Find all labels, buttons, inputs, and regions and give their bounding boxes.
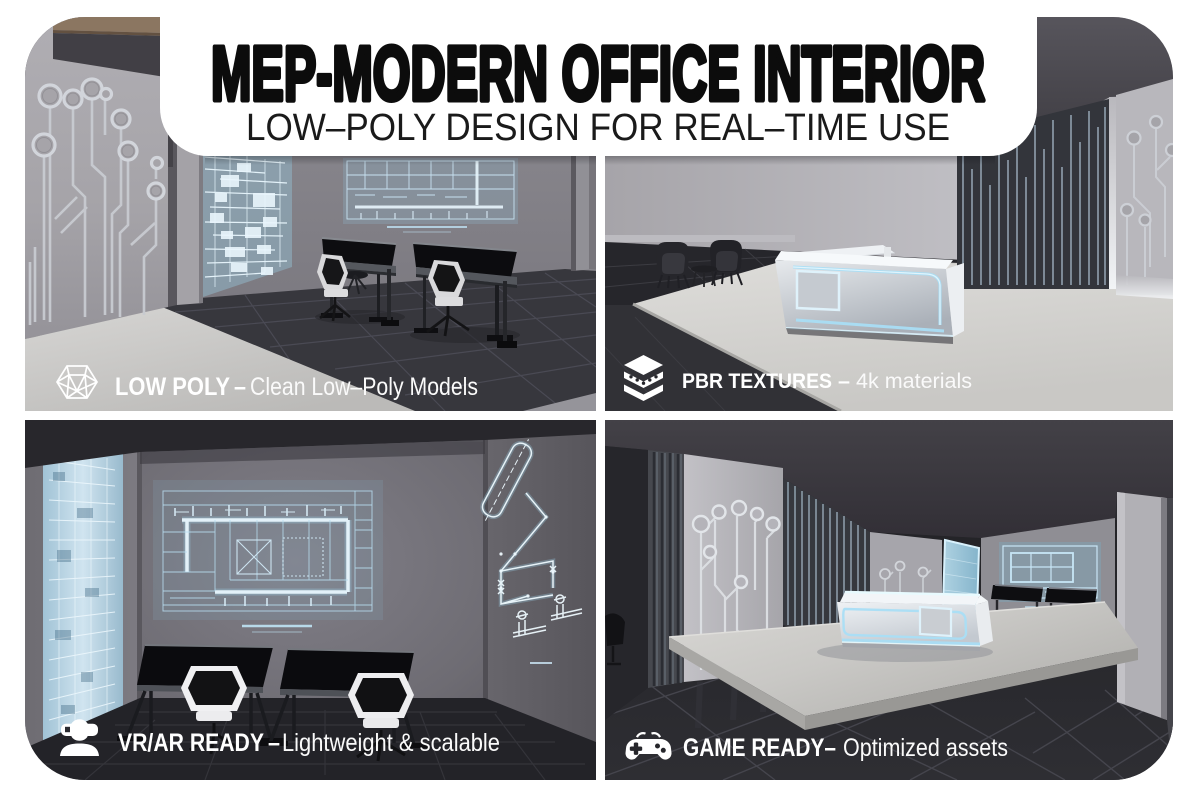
svg-text:VR/AR READY: VR/AR READY (118, 729, 264, 757)
svg-text:LOW POLY: LOW POLY (115, 373, 230, 401)
svg-text:–: – (268, 729, 280, 757)
svg-text:–: – (234, 373, 246, 401)
svg-text:Clean Low–Poly Models: Clean Low–Poly Models (250, 373, 478, 401)
svg-text:Lightweight & scalable: Lightweight & scalable (282, 729, 500, 757)
svg-text:GAME READY–: GAME READY– (683, 734, 836, 762)
svg-text:PBR TEXTURES: PBR TEXTURES (682, 369, 832, 393)
svg-text:4k materials: 4k materials (856, 369, 972, 393)
svg-text:–: – (838, 369, 850, 393)
svg-text:Optimized assets: Optimized assets (843, 734, 1008, 762)
